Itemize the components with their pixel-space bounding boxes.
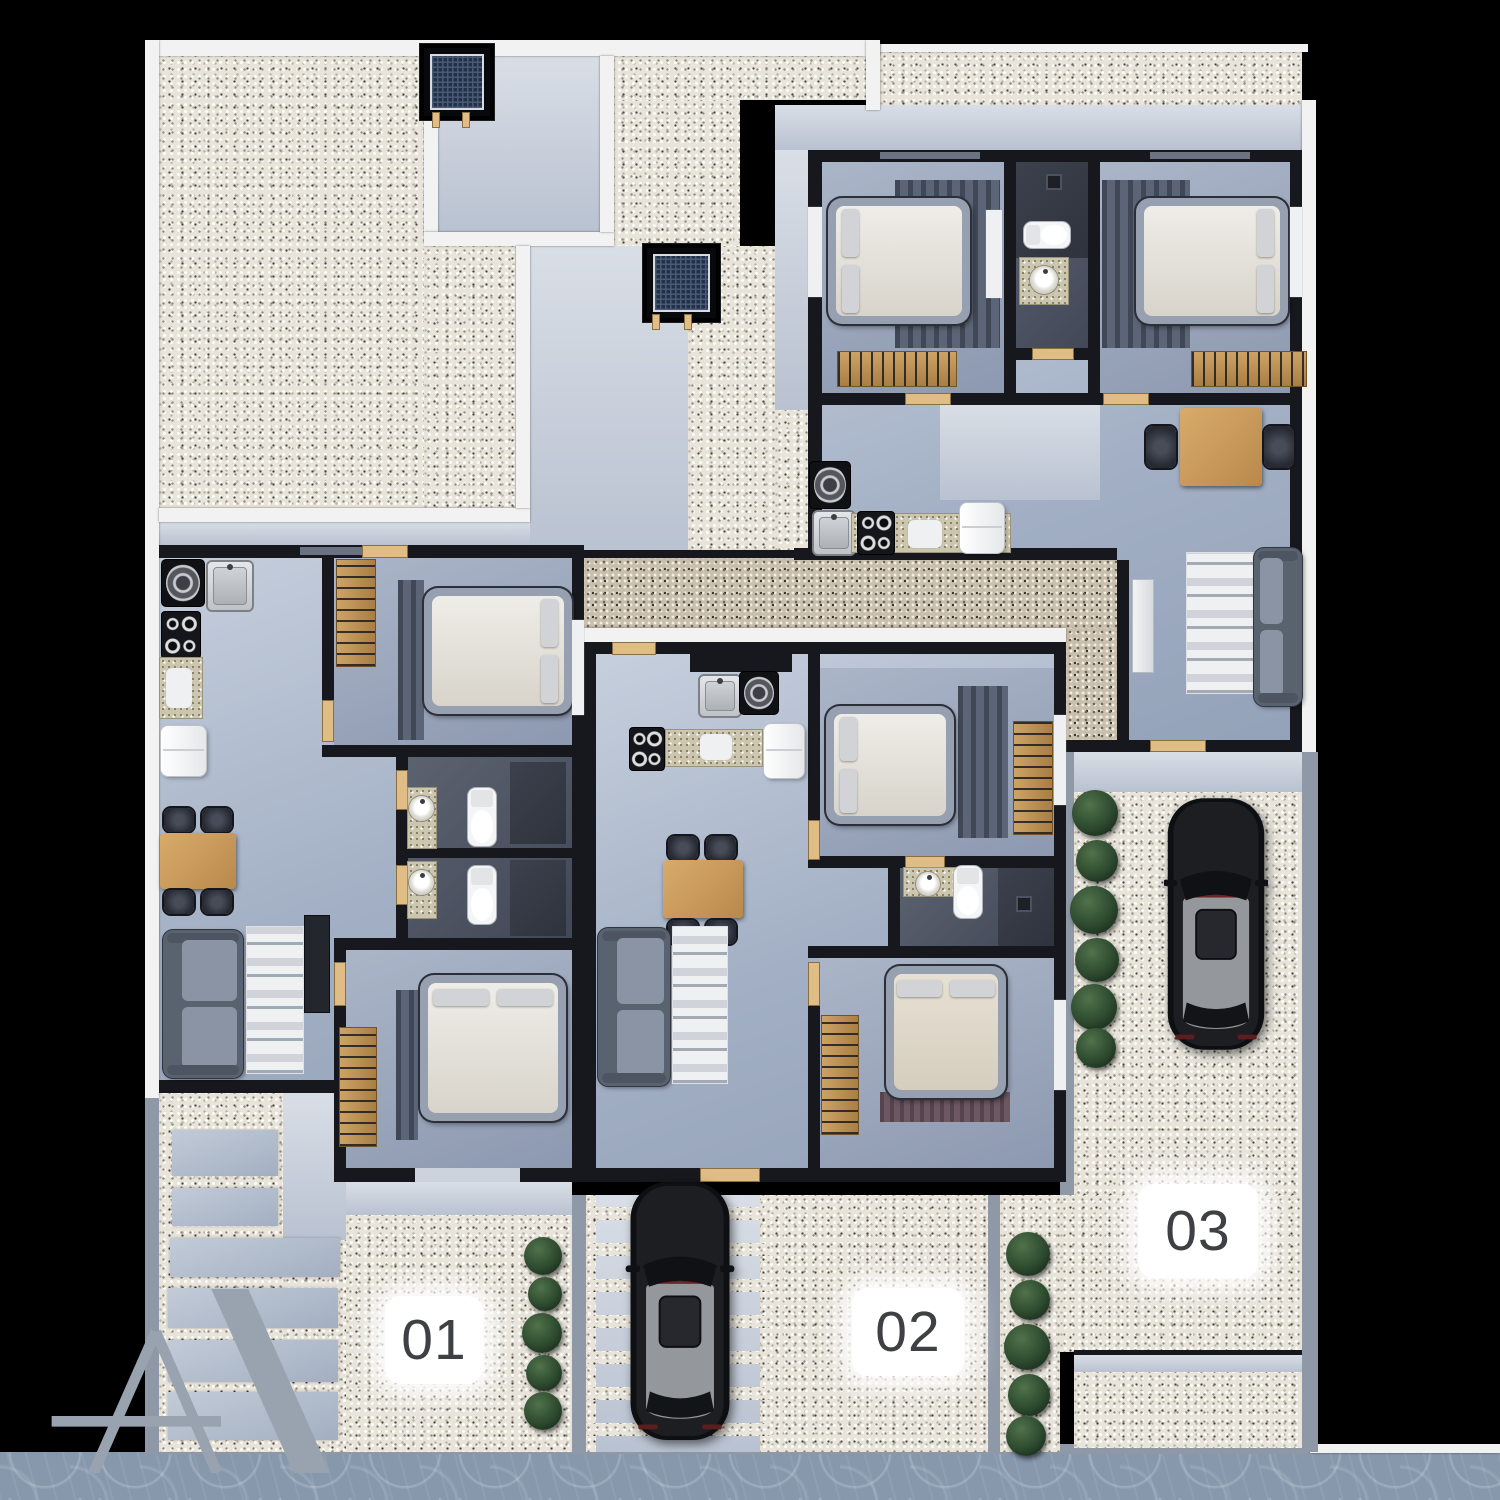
car-unit03 [1164, 795, 1268, 1053]
u02-kitchen-backsplash [690, 654, 792, 672]
shrub [524, 1392, 562, 1430]
unit02-parapet-top [584, 628, 1066, 642]
u02-wall-top [596, 642, 1066, 654]
window-sill [1290, 207, 1302, 297]
dining-table [1180, 408, 1262, 486]
door-u02-bed2 [808, 962, 820, 1006]
dining-table [663, 860, 743, 918]
wardrobe-rack [1192, 352, 1306, 386]
shrub [1008, 1374, 1050, 1416]
patio1-wall-bottom [424, 232, 614, 246]
window-sill [572, 620, 584, 715]
skylight-leg [684, 314, 692, 330]
skylight-leg [462, 112, 470, 128]
shrub [1010, 1280, 1050, 1320]
pillow [897, 980, 943, 997]
pillow [541, 655, 558, 703]
unit01-walk-strip [346, 1182, 572, 1215]
stove-cooktop [162, 612, 200, 658]
window-lintel [1150, 152, 1250, 159]
balcony-strip-03-left [775, 150, 808, 410]
shrub [1076, 840, 1118, 882]
unit-label-01: 01 [385, 1296, 483, 1384]
pillow [541, 599, 558, 647]
washing-machine [810, 462, 850, 508]
round-sink [409, 870, 434, 895]
u01-wall-bath-divider [400, 848, 572, 858]
shower-drain [1046, 174, 1062, 190]
shrub [1006, 1232, 1050, 1276]
bed-unit02-b [886, 966, 1006, 1098]
laundry-sink [698, 674, 742, 718]
round-sink [409, 796, 434, 821]
window-lintel [300, 547, 362, 555]
counter-sink [908, 520, 942, 548]
counter-sink [700, 734, 732, 760]
window-sill [1054, 715, 1066, 805]
patio1-wall-right [600, 56, 614, 232]
door-u01-entry [362, 545, 408, 558]
u02-wall-bed2-top [808, 946, 1066, 958]
door-u02-bath [905, 856, 945, 868]
shower-closet [510, 860, 566, 936]
door-u01-bath2 [396, 865, 408, 905]
unit03-courtyard-gravel-leg [1066, 628, 1117, 752]
shrub [526, 1355, 562, 1391]
living-rug [1186, 552, 1264, 694]
sofa-cushion [1260, 558, 1283, 624]
chair [1264, 426, 1294, 468]
gray-wall-parking-div2 [988, 1195, 1000, 1452]
sofa [598, 928, 670, 1086]
bed-unit01-b [420, 975, 566, 1121]
toilet [954, 866, 982, 918]
unit-label-02: 02 [852, 1288, 964, 1376]
toilet [468, 866, 496, 924]
chair [164, 890, 194, 914]
unit03-apron-gravel [1074, 1372, 1302, 1448]
window-lintel [880, 152, 980, 159]
u02-wall-west [584, 642, 596, 1182]
gray-wall-right-low [1302, 752, 1318, 1452]
door-u02-bed1 [808, 820, 820, 860]
u03-wall-beda-bath [1004, 162, 1016, 405]
pillow [1257, 265, 1274, 313]
pillow [497, 989, 552, 1006]
car-unit02 [622, 1180, 738, 1442]
u02-wall-bed2-left [808, 1006, 820, 1168]
skylight-grate-1 [420, 44, 494, 120]
paver-slab [172, 1130, 278, 1176]
fridge [161, 726, 206, 776]
floor-plan-render: 01 02 03 [0, 0, 1500, 1500]
outer-wall-left [145, 40, 159, 1098]
u01-wall-bed1-left [322, 558, 334, 700]
outer-wall-top [145, 40, 880, 56]
wardrobe-rack [337, 560, 375, 666]
laundry-sink [206, 560, 254, 612]
u03-wall-court-east [1117, 560, 1129, 752]
door-u01-bed2 [334, 962, 346, 1006]
garden-gravel-notch [424, 246, 516, 508]
sofa [1254, 548, 1302, 706]
living-rug [672, 926, 728, 1084]
sofa-cushion [182, 940, 237, 1001]
curb-white [1310, 1444, 1500, 1453]
washing-machine [740, 672, 778, 714]
outer-wall-right [1302, 100, 1316, 752]
pillow [950, 980, 996, 997]
parapet-line [880, 44, 1308, 52]
door-u01-bed1 [322, 700, 334, 742]
unit-label-03: 03 [1138, 1184, 1258, 1278]
bedside-rug [396, 990, 418, 1140]
shrub [1004, 1324, 1050, 1370]
bedside-rug [398, 580, 424, 740]
shrub [1072, 790, 1118, 836]
laundry-sink [812, 510, 856, 556]
fridge [764, 724, 804, 778]
unit01-entry-strip [159, 522, 530, 545]
toilet [468, 788, 496, 846]
counter-sink [166, 668, 192, 708]
pillow [840, 717, 857, 762]
bed-unit02-a [826, 706, 954, 824]
bed-unit01-a [424, 588, 572, 714]
garden-gravel-topleft [159, 56, 424, 508]
garden-wall-bottom [159, 508, 530, 522]
sofa-cushion [617, 1010, 664, 1076]
door-u03-bath [1032, 348, 1074, 360]
stove-cooktop [858, 512, 894, 554]
shrub [522, 1313, 562, 1353]
bed-unit03-a [828, 198, 970, 324]
shrub [1071, 984, 1117, 1030]
garden-gravel-top03 [880, 52, 1302, 105]
door-u03-rear [1150, 740, 1206, 752]
tv-console [1133, 580, 1153, 672]
pillow [842, 209, 859, 257]
notch-wall-right [516, 246, 530, 508]
chair [1146, 426, 1176, 468]
wardrobe-rack [340, 1028, 376, 1146]
shrub [1070, 886, 1118, 934]
door-u03-beda [905, 393, 951, 405]
toilet [1024, 222, 1070, 248]
u01-wall-living-bottom [159, 1080, 334, 1093]
door-u03-bedb [1103, 393, 1149, 405]
unit03-walkway [1060, 752, 1302, 792]
shrub [1075, 938, 1119, 982]
unit03-hall-floor [940, 405, 1100, 500]
garden-gravel-corridor-top [600, 56, 880, 100]
skylight-grate-2 [643, 244, 720, 322]
tv-console [305, 916, 329, 1012]
chair [706, 836, 736, 860]
shower-closet [510, 762, 566, 844]
unit03-entry-strip [1074, 1355, 1302, 1372]
chair [668, 836, 698, 860]
chair [202, 808, 232, 832]
unit03-courtyard-gravel [584, 558, 1117, 628]
u03-wall-bath-bedb [1088, 162, 1100, 405]
bed-unit03-b [1136, 198, 1288, 324]
shrub [524, 1237, 562, 1275]
round-sink [1030, 266, 1058, 294]
u02-wall-bath-left [888, 868, 900, 946]
sofa-cushion [182, 1007, 237, 1068]
round-sink [916, 872, 940, 896]
door-u01-bath1 [396, 770, 408, 810]
shrub [528, 1277, 562, 1311]
u03-wall-court-top [584, 550, 794, 558]
gray-wall-parking-div1 [572, 1195, 586, 1452]
sofa-cushion [617, 938, 664, 1004]
u01-wall-bed1-bottom [322, 745, 584, 757]
garden-gravel-corridor [600, 100, 740, 246]
balcony-strip-03-top [775, 105, 1308, 150]
window-sill [1054, 1000, 1066, 1090]
pillow [842, 265, 859, 313]
u03-wall-bedrooms-bottom [808, 393, 1302, 405]
shrub [1076, 1028, 1116, 1068]
outer-wall-step [866, 40, 880, 110]
gravel-fill-03-left [775, 410, 808, 558]
skylight-leg [652, 314, 660, 330]
wardrobe-rack [822, 1016, 858, 1134]
paver-slab [172, 1188, 278, 1226]
bedside-rug [958, 686, 1008, 838]
window-sill [808, 207, 822, 297]
washing-machine [162, 560, 204, 606]
closet-door [986, 210, 1002, 298]
fridge [960, 503, 1004, 553]
wardrobe-rack [1014, 722, 1052, 834]
living-rug [246, 926, 304, 1074]
skylight-leg [432, 112, 440, 128]
pillow [1257, 209, 1274, 257]
dining-table [160, 833, 236, 889]
u01-wall-bed2-top [334, 938, 572, 950]
wardrobe-rack [838, 352, 956, 386]
chair [164, 808, 194, 832]
sofa-cushion [1260, 630, 1283, 696]
paver-slab [170, 1238, 340, 1277]
pillow [433, 989, 488, 1006]
door-u02-entry [612, 642, 656, 655]
stove-cooktop [630, 728, 664, 770]
shower-drain [1016, 896, 1032, 912]
door-u01-rear [415, 1168, 520, 1182]
pillow [840, 769, 857, 814]
chair [202, 890, 232, 914]
shrub [1006, 1416, 1046, 1456]
u02-wall-bed1-left [808, 654, 820, 820]
sofa [163, 930, 243, 1078]
architect-logo-icon [38, 1283, 330, 1473]
